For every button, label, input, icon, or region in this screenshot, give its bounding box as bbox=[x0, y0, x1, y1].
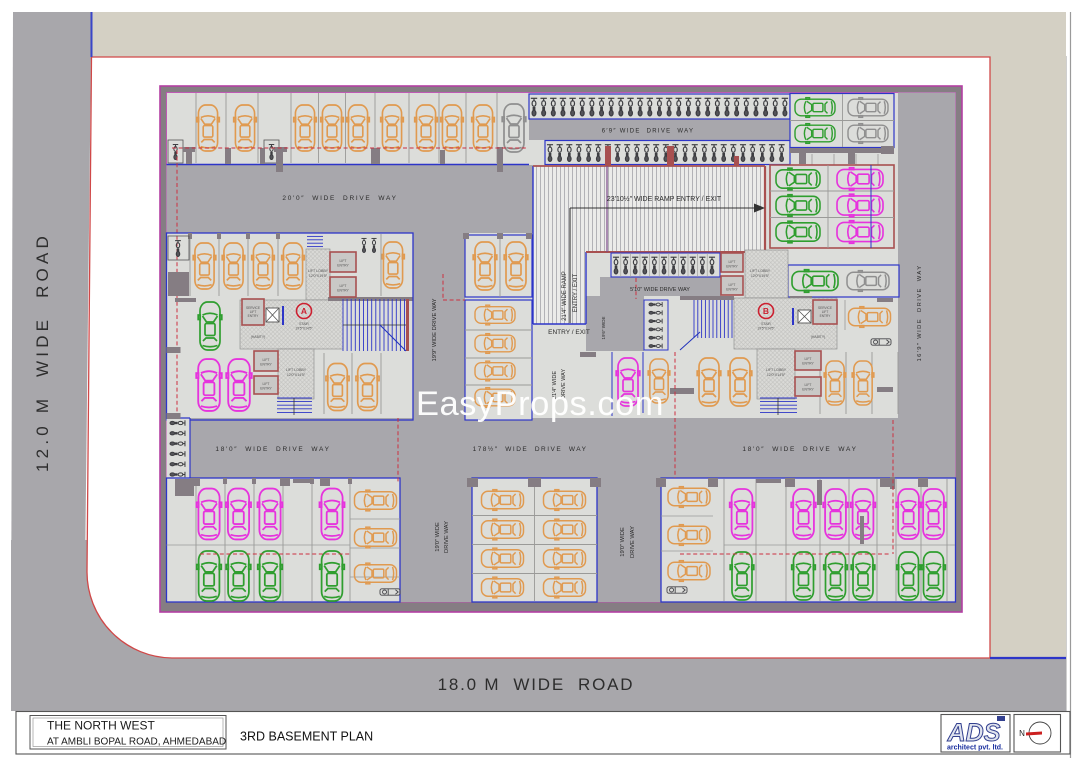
svg-text:ENTRY: ENTRY bbox=[260, 387, 272, 391]
svg-text:3RD BASEMENT PLAN: 3RD BASEMENT PLAN bbox=[240, 730, 373, 744]
svg-text:12′0″X19′5″: 12′0″X19′5″ bbox=[751, 274, 770, 278]
svg-text:B: B bbox=[763, 306, 769, 316]
svg-text:STAIR: STAIR bbox=[761, 322, 771, 326]
svg-text:20′0″ WIDE DRIVE WAY: 20′0″ WIDE DRIVE WAY bbox=[282, 195, 397, 202]
svg-text:LIFT: LIFT bbox=[729, 260, 736, 264]
svg-text:ENTRY: ENTRY bbox=[248, 314, 260, 318]
svg-text:18′0″ WIDE DRIVE WAY: 18′0″ WIDE DRIVE WAY bbox=[215, 446, 330, 453]
svg-text:6′9″ WIDE DRIVE WAY: 6′9″ WIDE DRIVE WAY bbox=[602, 129, 695, 135]
svg-text:21′4″ WIDE RAMP: 21′4″ WIDE RAMP bbox=[562, 271, 568, 321]
svg-text:DRIVE WAY: DRIVE WAY bbox=[444, 521, 450, 553]
svg-text:AT AMBLI BOPAL ROAD, AHMEDABAD: AT AMBLI BOPAL ROAD, AHMEDABAD bbox=[47, 737, 226, 748]
svg-text:12′0″X14′5″: 12′0″X14′5″ bbox=[287, 373, 306, 377]
svg-text:LIFT: LIFT bbox=[263, 358, 270, 362]
svg-text:18.0 M WIDE ROAD: 18.0 M WIDE ROAD bbox=[438, 675, 635, 694]
svg-text:(HABITY): (HABITY) bbox=[811, 335, 826, 339]
svg-text:16′9″ WIDE DRIVE WAY: 16′9″ WIDE DRIVE WAY bbox=[917, 264, 923, 361]
svg-text:N: N bbox=[1019, 729, 1025, 738]
svg-text:LIFT: LIFT bbox=[340, 259, 347, 263]
svg-text:ENTRY / EXIT: ENTRY / EXIT bbox=[548, 329, 590, 336]
svg-text:ENTRY: ENTRY bbox=[820, 314, 832, 318]
svg-text:ADS: ADS bbox=[947, 719, 1001, 747]
svg-text:178½″ WIDE DRIVE WAY: 178½″ WIDE DRIVE WAY bbox=[473, 445, 588, 453]
svg-text:12′0″X19′5″: 12′0″X19′5″ bbox=[309, 274, 328, 278]
svg-text:LIFT: LIFT bbox=[340, 284, 347, 288]
svg-text:12′0″X14′5″: 12′0″X14′5″ bbox=[767, 373, 786, 377]
svg-text:LIFT: LIFT bbox=[805, 357, 812, 361]
svg-text:19′0″ WIDE: 19′0″ WIDE bbox=[435, 522, 441, 552]
svg-text:LIFT LOBBY: LIFT LOBBY bbox=[286, 368, 307, 372]
svg-text:LIFT: LIFT bbox=[729, 283, 736, 287]
svg-text:19′5″X14′5″: 19′5″X14′5″ bbox=[295, 327, 313, 331]
svg-text:ENTRY: ENTRY bbox=[802, 388, 814, 392]
svg-text:LIFT LOBBY: LIFT LOBBY bbox=[308, 269, 329, 273]
svg-text:19′5″X14′5″: 19′5″X14′5″ bbox=[757, 327, 775, 331]
svg-text:ENTRY: ENTRY bbox=[726, 265, 738, 269]
svg-text:EasyProps.com: EasyProps.com bbox=[416, 385, 664, 423]
svg-text:ENTRY: ENTRY bbox=[726, 288, 738, 292]
svg-text:THE NORTH WEST: THE NORTH WEST bbox=[47, 719, 155, 733]
svg-text:LIFT: LIFT bbox=[263, 382, 270, 386]
svg-text:ENTRY: ENTRY bbox=[260, 363, 272, 367]
svg-text:ENTRY: ENTRY bbox=[802, 362, 814, 366]
svg-text:STAIR: STAIR bbox=[299, 322, 309, 326]
svg-text:(HABITY): (HABITY) bbox=[251, 335, 266, 339]
svg-text:DRIVE WAY: DRIVE WAY bbox=[630, 526, 636, 558]
svg-text:LIFT LOBBY: LIFT LOBBY bbox=[750, 269, 771, 273]
svg-text:18′0″ WIDE DRIVE WAY: 18′0″ WIDE DRIVE WAY bbox=[742, 446, 857, 453]
svg-text:architect pvt. ltd.: architect pvt. ltd. bbox=[947, 745, 1003, 752]
svg-text:19′6″ WIDE: 19′6″ WIDE bbox=[601, 317, 606, 340]
svg-text:A: A bbox=[301, 306, 307, 316]
svg-text:12.0 M WIDE ROAD: 12.0 M WIDE ROAD bbox=[33, 232, 52, 472]
svg-text:23′10½″ WIDE RAMP ENTRY / EXIT: 23′10½″ WIDE RAMP ENTRY / EXIT bbox=[607, 195, 722, 203]
svg-text:ENTRY: ENTRY bbox=[337, 264, 349, 268]
svg-text:LIFT LOBBY: LIFT LOBBY bbox=[766, 368, 787, 372]
svg-text:19′9″ WIDE DRIVE WAY: 19′9″ WIDE DRIVE WAY bbox=[432, 298, 438, 361]
svg-text:5′10″ WIDE DRIVE WAY: 5′10″ WIDE DRIVE WAY bbox=[630, 287, 690, 293]
svg-text:LIFT: LIFT bbox=[805, 383, 812, 387]
svg-text:ENTRY: ENTRY bbox=[337, 289, 349, 293]
svg-text:ENTRY / EXIT: ENTRY / EXIT bbox=[573, 273, 579, 312]
svg-text:19′0″ WIDE: 19′0″ WIDE bbox=[620, 527, 626, 557]
